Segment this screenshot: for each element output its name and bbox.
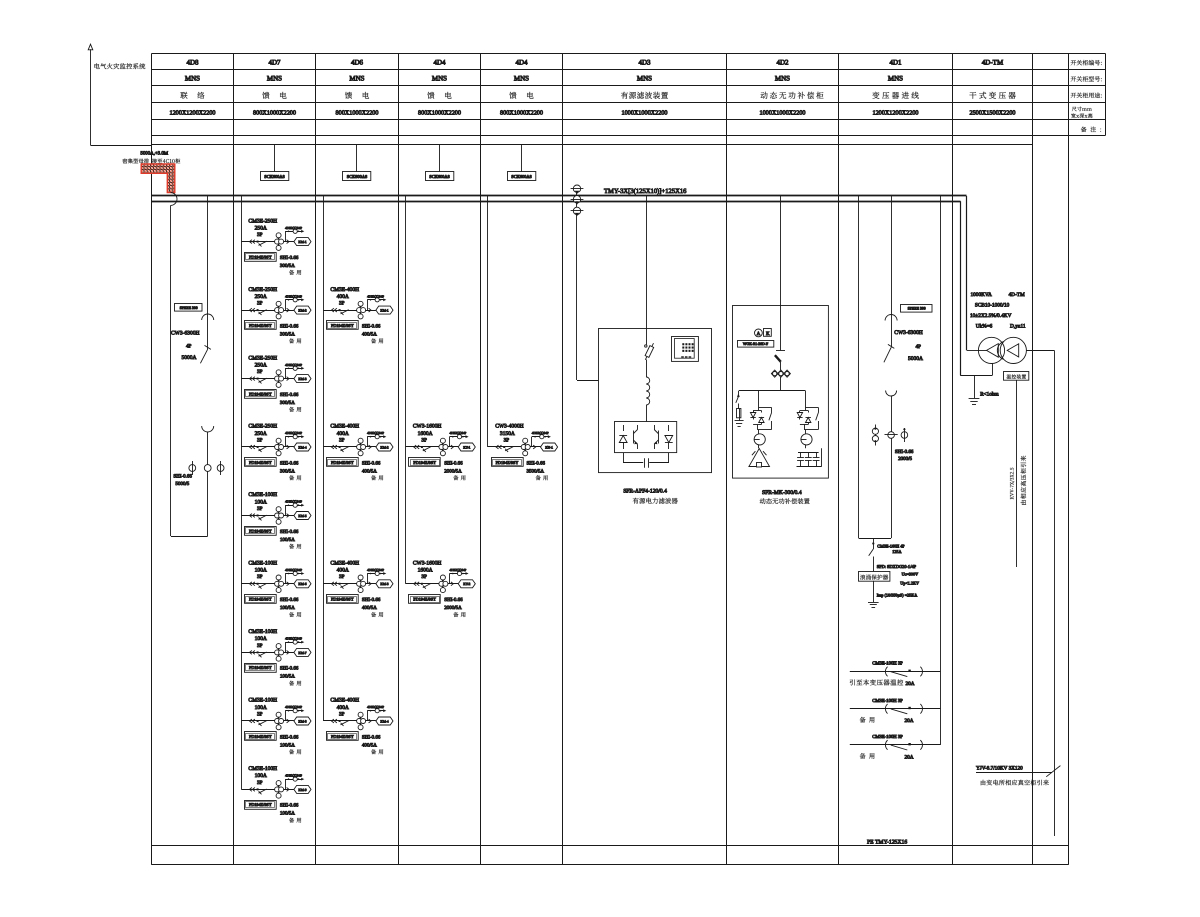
svg-text:SHI-0.66: SHI-0.66 (280, 666, 299, 672)
svg-text:100/5A: 100/5A (280, 811, 295, 817)
svg-text:4DE2(X)84P: 4DE2(X)84P (285, 637, 302, 641)
svg-text:4P: 4P (186, 344, 192, 350)
svg-text:PD194Z/9SY: PD194Z/9SY (249, 597, 272, 602)
svg-text:800X1000X2200: 800X1000X2200 (418, 110, 461, 117)
svg-text:KM-1: KM-1 (298, 240, 307, 244)
svg-text:SCK600A8: SCK600A8 (511, 174, 532, 179)
svg-text:SCK600A8: SCK600A8 (429, 174, 450, 179)
svg-text:SHI-0.66: SHI-0.66 (362, 597, 381, 603)
svg-text:5000A: 5000A (908, 356, 923, 362)
svg-text:KN-1: KN-1 (545, 445, 553, 449)
svg-text:400A: 400A (337, 294, 349, 300)
svg-text:SHI-0.66: SHI-0.66 (527, 460, 546, 466)
svg-text:PD194Z/9SY: PD194Z/9SY (249, 460, 272, 465)
svg-text:MNS: MNS (185, 75, 200, 83)
svg-text:SHI-0.66: SHI-0.66 (280, 460, 299, 466)
svg-text:KM-3: KM-3 (298, 377, 307, 381)
svg-text:20A: 20A (905, 754, 914, 760)
svg-text:CM3E-250H: CM3E-250H (248, 218, 277, 224)
svg-text:300/5A: 300/5A (280, 400, 295, 406)
svg-text:300/5A: 300/5A (280, 468, 295, 474)
svg-text:125A: 125A (892, 549, 901, 554)
svg-text:Up<1.2KV: Up<1.2KV (900, 581, 919, 586)
svg-text:100/5A: 100/5A (280, 742, 295, 748)
svg-text:2500X1500X2200: 2500X1500X2200 (969, 110, 1015, 117)
svg-text:4D8: 4D8 (186, 58, 199, 66)
svg-text:SFR-MK-300/0.4: SFR-MK-300/0.4 (762, 490, 802, 496)
svg-text:4P: 4P (915, 344, 921, 350)
svg-text:PD194Z/9SY: PD194Z/9SY (331, 323, 354, 328)
svg-text:4DE2(X)84P: 4DE2(X)84P (367, 294, 384, 298)
svg-text:KT-2: KT-2 (463, 582, 470, 586)
svg-text:PD194Z/9SY: PD194Z/9SY (249, 802, 272, 807)
svg-text:MNS: MNS (267, 75, 282, 83)
svg-text:MNS: MNS (775, 75, 790, 83)
svg-text:4D4: 4D4 (515, 58, 528, 66)
svg-text:SPERE 300: SPERE 300 (180, 306, 198, 310)
svg-text:CW3-6300H: CW3-6300H (894, 330, 922, 336)
svg-text:4D2: 4D2 (776, 58, 789, 66)
svg-text:PD194Z/9SY: PD194Z/9SY (331, 597, 354, 602)
svg-text:Imp (10/350µS) =25KA: Imp (10/350µS) =25KA (877, 593, 918, 598)
svg-text:100/5A: 100/5A (280, 537, 295, 543)
svg-text:3500/5A: 3500/5A (527, 468, 545, 474)
svg-text:MNS: MNS (888, 75, 903, 83)
svg-text:CM3E-100H: CM3E-100H (248, 561, 277, 567)
svg-text:PD194Z/9SY: PD194Z/9SY (413, 460, 436, 465)
svg-text:3P: 3P (339, 574, 345, 580)
svg-text:3P: 3P (257, 711, 263, 717)
svg-text:4DE2(X)84P: 4DE2(X)84P (367, 705, 384, 709)
svg-text:PD194Z/9SY: PD194Z/9SY (249, 734, 272, 739)
svg-text:PE TMY-125X16: PE TMY-125X16 (867, 839, 907, 845)
svg-text:2000/5: 2000/5 (898, 456, 912, 462)
svg-text:CW3-4000H: CW3-4000H (495, 424, 523, 430)
svg-text:KM-4: KM-4 (298, 445, 307, 449)
svg-text:100A: 100A (255, 499, 267, 505)
svg-text:MNS: MNS (637, 75, 652, 83)
svg-text:4DE2(X)84P: 4DE2(X)84P (285, 568, 302, 572)
svg-text:400/5A: 400/5A (362, 605, 377, 611)
svg-text:WGK-31-20D-F: WGK-31-20D-F (743, 342, 768, 346)
svg-text:300/5A: 300/5A (280, 331, 295, 337)
svg-text:800X1000X2200: 800X1000X2200 (336, 110, 379, 117)
svg-text:250A: 250A (255, 225, 267, 231)
svg-text:R<1ohm: R<1ohm (980, 391, 999, 397)
svg-text:SHI-0.66: SHI-0.66 (444, 460, 463, 466)
svg-text:CM3E-250H: CM3E-250H (248, 287, 277, 293)
svg-text:KM-8: KM-8 (298, 719, 307, 723)
svg-text:10±2X2.5%/0.4KV: 10±2X2.5%/0.4KV (970, 313, 1012, 319)
svg-text:SHI-0.66: SHI-0.66 (280, 529, 299, 535)
svg-text:4D4: 4D4 (433, 58, 446, 66)
svg-text:MNS: MNS (514, 75, 529, 83)
svg-text:KM-7: KM-7 (298, 651, 307, 655)
svg-text:4D1: 4D1 (889, 58, 902, 66)
svg-text:3P: 3P (339, 437, 345, 443)
svg-text:SPERE 300: SPERE 300 (908, 307, 926, 311)
svg-text:KM-6: KM-6 (298, 582, 307, 586)
svg-text:PD194Z/9SY: PD194Z/9SY (413, 597, 436, 602)
svg-text:4D-TM: 4D-TM (1009, 292, 1025, 298)
svg-text:MNS: MNS (349, 75, 364, 83)
svg-text:100A: 100A (255, 705, 267, 711)
svg-text:3P: 3P (257, 301, 263, 307)
svg-text:4DE2(X)84P: 4DE2(X)84P (449, 431, 466, 435)
svg-text:400A: 400A (337, 705, 349, 711)
svg-text:CM3E-100H 3P: CM3E-100H 3P (872, 734, 903, 740)
svg-text:SCK600A8: SCK600A8 (264, 174, 285, 179)
svg-text:4D-TM: 4D-TM (982, 58, 1004, 66)
svg-text:4DE2(X)84P: 4DE2(X)84P (285, 500, 302, 504)
svg-text:KM-1: KM-1 (380, 309, 389, 313)
svg-text:4DE2(X)84P: 4DE2(X)84P (285, 363, 302, 367)
svg-text:TMY-3X[3(125X10)]+125X16: TMY-3X[3(125X10)]+125X16 (604, 188, 687, 195)
svg-text:CM3E-400H: CM3E-400H (330, 698, 359, 704)
svg-text:SHI-0.66: SHI-0.66 (173, 474, 192, 480)
svg-text:4DE2(X)84P: 4DE2(X)84P (285, 705, 302, 709)
svg-text:YJV-8.7/10KV 3X120: YJV-8.7/10KV 3X120 (976, 766, 1023, 772)
svg-text:CM3E-100H: CM3E-100H (248, 698, 277, 704)
svg-text:4DE2(X)84P: 4DE2(X)84P (285, 431, 302, 435)
svg-text:SCK600A8: SCK600A8 (347, 174, 368, 179)
svg-text:100A: 100A (255, 773, 267, 779)
svg-text:PD194Z/9SY: PD194Z/9SY (249, 323, 272, 328)
svg-text:CM3E-250H: CM3E-250H (248, 355, 277, 361)
svg-text:SCB10-1000/10: SCB10-1000/10 (975, 303, 1010, 309)
svg-text:100A: 100A (255, 568, 267, 574)
svg-text:CM3E-100H: CM3E-100H (248, 766, 277, 772)
svg-text:3P: 3P (504, 437, 510, 443)
svg-text:3P: 3P (257, 437, 263, 443)
svg-text:CM3E-400H: CM3E-400H (330, 287, 359, 293)
svg-text:800X1000X2200: 800X1000X2200 (253, 110, 296, 117)
svg-text:CM3E-400H: CM3E-400H (330, 561, 359, 567)
svg-text:100A: 100A (255, 636, 267, 642)
svg-text:1600A: 1600A (418, 431, 433, 437)
svg-text:PD194Z/9SY: PD194Z/9SY (249, 665, 272, 670)
svg-text:5000/5: 5000/5 (175, 481, 189, 487)
svg-text:PD194Z/9SY: PD194Z/9SY (249, 254, 272, 259)
svg-text:Uc=300V: Uc=300V (902, 572, 919, 577)
svg-text:3P: 3P (339, 301, 345, 307)
svg-text:3P: 3P (257, 369, 263, 375)
svg-text:100/5A: 100/5A (280, 605, 295, 611)
svg-text:SPD: SDXDG20-1/4P: SPD: SDXDG20-1/4P (877, 564, 917, 569)
svg-text:400A: 400A (337, 431, 349, 437)
svg-text:1200X1200X2200: 1200X1200X2200 (169, 110, 215, 117)
svg-text:4DE2(X)84P: 4DE2(X)84P (285, 774, 302, 778)
svg-text:SHI-0.66: SHI-0.66 (280, 597, 299, 603)
svg-text:4DE2(X)84P: 4DE2(X)84P (532, 431, 549, 435)
svg-text:CM3E-250H: CM3E-250H (248, 424, 277, 430)
svg-text:PD194Z/9SY: PD194Z/9SY (496, 460, 519, 465)
svg-text:3P: 3P (339, 711, 345, 717)
svg-text:SHI-0.66: SHI-0.66 (280, 323, 299, 329)
svg-text:Uk%=6: Uk%=6 (976, 324, 993, 330)
svg-text:SHI-0.66: SHI-0.66 (280, 392, 299, 398)
svg-text:4D7: 4D7 (268, 58, 281, 66)
svg-text:1000KVA: 1000KVA (971, 292, 993, 298)
svg-text:SHI-0.66: SHI-0.66 (444, 597, 463, 603)
svg-text:MNS: MNS (432, 75, 447, 83)
svg-text:KM-3: KM-3 (380, 582, 389, 586)
svg-text:250A: 250A (255, 294, 267, 300)
svg-text:3P: 3P (257, 506, 263, 512)
svg-text:3150A: 3150A (500, 431, 515, 437)
svg-text:PD194Z/9SY: PD194Z/9SY (331, 460, 354, 465)
svg-text:PD194Z/9SY: PD194Z/9SY (249, 528, 272, 533)
svg-text:KM-5: KM-5 (298, 514, 307, 518)
svg-text:4DE2(X)84P: 4DE2(X)84P (367, 568, 384, 572)
svg-text:4DE2(X)84P: 4DE2(X)84P (285, 294, 302, 298)
svg-text:5000A,+3.0M: 5000A,+3.0M (140, 150, 168, 156)
svg-text:K: K (766, 331, 770, 337)
svg-text:400/5A: 400/5A (362, 742, 377, 748)
svg-text:SHI-0.66: SHI-0.66 (895, 449, 914, 455)
svg-text:2000/5A: 2000/5A (444, 468, 462, 474)
svg-text:4D3: 4D3 (638, 58, 651, 66)
svg-text:KT-1: KT-1 (463, 445, 470, 449)
svg-text:CM3E-400H: CM3E-400H (330, 424, 359, 430)
svg-text:SHI-0.66: SHI-0.66 (362, 460, 381, 466)
svg-text:3P: 3P (421, 574, 427, 580)
svg-text:2000/5A: 2000/5A (444, 605, 462, 611)
svg-text:D,yn11: D,yn11 (1010, 324, 1026, 330)
svg-text:SHI-0.66: SHI-0.66 (280, 734, 299, 740)
svg-text:3P: 3P (257, 574, 263, 580)
svg-text:KM-2: KM-2 (298, 309, 307, 313)
svg-text:CW3-1600H: CW3-1600H (413, 424, 441, 430)
svg-text:4DE2(X)84P: 4DE2(X)84P (449, 568, 466, 572)
svg-text:250A: 250A (255, 362, 267, 368)
svg-text:20A: 20A (906, 681, 915, 687)
svg-text:3P: 3P (421, 437, 427, 443)
svg-text:SHI-0.66: SHI-0.66 (280, 803, 299, 809)
svg-text:CW3-6300H: CW3-6300H (171, 331, 199, 337)
svg-text:CM3E-100H: CM3E-100H (248, 629, 277, 635)
svg-text:SHI-0.66: SHI-0.66 (362, 323, 381, 329)
svg-text:CM3E-100H: CM3E-100H (248, 492, 277, 498)
svg-text:PD194Z/9SY: PD194Z/9SY (249, 391, 272, 396)
svg-text:100/5A: 100/5A (280, 674, 295, 680)
svg-text:400/5A: 400/5A (362, 468, 377, 474)
svg-text:250A: 250A (255, 431, 267, 437)
svg-text:400/5A: 400/5A (362, 331, 377, 337)
svg-text:3P: 3P (257, 643, 263, 649)
svg-text:4DE2(X)84P: 4DE2(X)84P (367, 431, 384, 435)
svg-text:5000A: 5000A (182, 355, 197, 361)
svg-text:KM-9: KM-9 (298, 788, 307, 792)
svg-text:A: A (757, 331, 761, 337)
svg-text:KM-4: KM-4 (380, 719, 389, 723)
svg-text:SHI-0.66: SHI-0.66 (280, 255, 299, 261)
svg-text:CM3E-100H 3P: CM3E-100H 3P (872, 698, 903, 704)
svg-text:CW3-1600H: CW3-1600H (413, 561, 441, 567)
svg-text:1600A: 1600A (418, 568, 433, 574)
svg-text:4DE2(X)84P: 4DE2(X)84P (285, 226, 302, 230)
svg-text:SHI-0.66: SHI-0.66 (362, 734, 381, 740)
svg-text:CM3E-100H 3P: CM3E-100H 3P (872, 661, 903, 667)
svg-text:SFR-APF4-120/0.4: SFR-APF4-120/0.4 (623, 489, 667, 495)
svg-text:20A: 20A (905, 718, 914, 724)
svg-text:1200X1200X2200: 1200X1200X2200 (872, 110, 918, 117)
svg-text:800X1000X2200: 800X1000X2200 (500, 110, 543, 117)
svg-text:4D6: 4D6 (351, 58, 364, 66)
svg-text:PD194Z/9SY: PD194Z/9SY (331, 734, 354, 739)
svg-text:3P: 3P (257, 780, 263, 786)
svg-text:KM-2: KM-2 (380, 445, 389, 449)
svg-text:3P: 3P (257, 232, 263, 238)
svg-text:1000X1000X2200: 1000X1000X2200 (759, 110, 805, 117)
svg-text:CM3E-160H 4P: CM3E-160H 4P (877, 544, 905, 549)
svg-text:300/5A: 300/5A (280, 263, 295, 269)
svg-text:1000X1000X2200: 1000X1000X2200 (621, 110, 667, 117)
svg-text:400A: 400A (337, 568, 349, 574)
